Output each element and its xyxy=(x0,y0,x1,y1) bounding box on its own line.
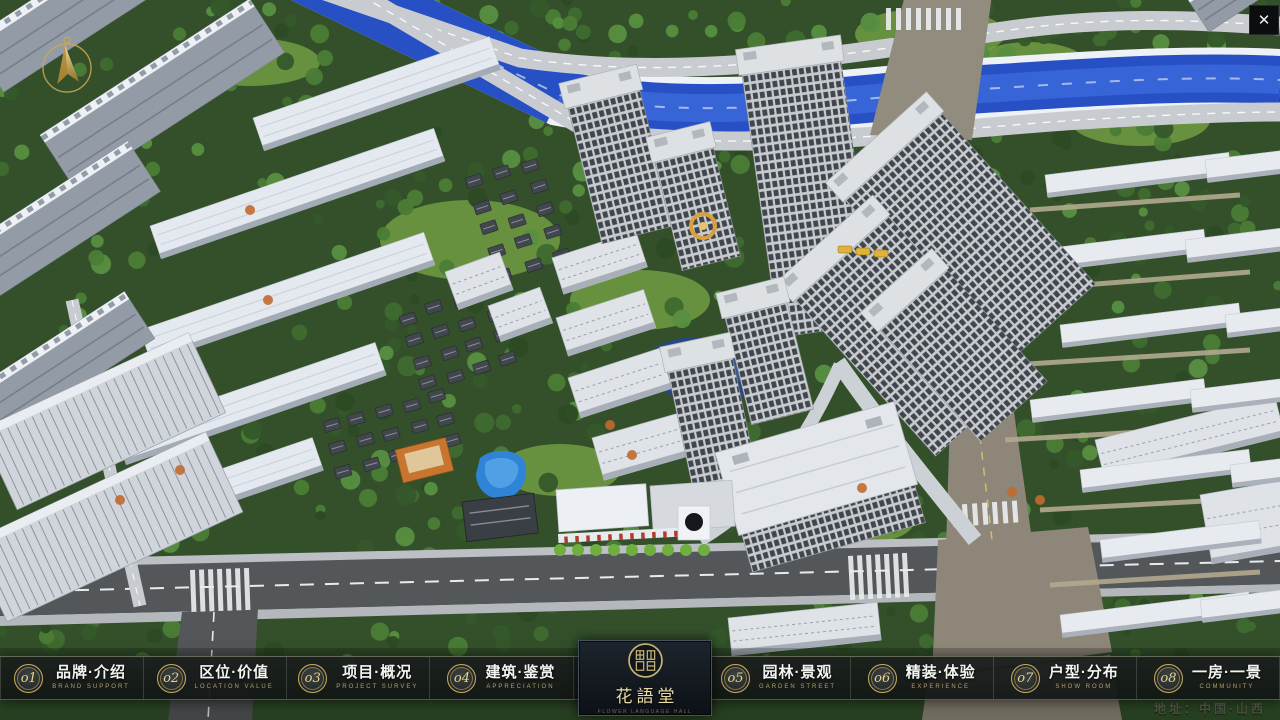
nav-badge: o5 xyxy=(721,664,750,693)
nav-label-zh: 项目·概况 xyxy=(342,665,412,682)
sales-presentation-window: ✕ o1 品牌·介绍 BRAND SUPPORT o2 区位·价值 LOCATI… xyxy=(0,0,1280,720)
close-icon: ✕ xyxy=(1258,13,1271,28)
nav-item-brand[interactable]: o1 品牌·介绍 BRAND SUPPORT xyxy=(0,657,144,699)
nav-badge: o1 xyxy=(14,664,43,693)
compass-icon xyxy=(34,26,100,100)
nav-label-en: BRAND SUPPORT xyxy=(52,684,130,691)
nav-label-en: COMMUNITY xyxy=(1199,684,1254,691)
nav-item-garden[interactable]: o5 园林·景观 GARDEN STREET xyxy=(708,657,851,699)
nav-badge: o3 xyxy=(298,664,327,693)
nav-label-zh: 一房·一景 xyxy=(1192,665,1262,682)
nav-item-views[interactable]: o8 一房·一景 COMMUNITY xyxy=(1137,657,1280,699)
nav-item-floorplan[interactable]: o7 户型·分布 SHOW ROOM xyxy=(994,657,1137,699)
nav-badge: o4 xyxy=(447,664,476,693)
nav-label-zh: 建筑·鉴赏 xyxy=(485,665,555,682)
aerial-site-map[interactable] xyxy=(0,0,1280,720)
nav-label-en: EXPERIENCE xyxy=(911,684,970,691)
close-button[interactable]: ✕ xyxy=(1249,5,1279,35)
logo-tagline: FLOWER LANGUAGE HALL xyxy=(598,709,692,715)
logo-title: 花語堂 xyxy=(616,682,679,707)
nav-label-zh: 园林·景观 xyxy=(763,665,833,682)
nav-label-en: LOCATION VALUE xyxy=(195,684,274,691)
nav-badge: o6 xyxy=(868,664,897,693)
nav-badge: o2 xyxy=(157,664,186,693)
logo-panel[interactable]: 花語堂 FLOWER LANGUAGE HALL xyxy=(578,640,712,716)
nav-label-zh: 精装·体验 xyxy=(906,665,976,682)
nav-label-zh: 户型·分布 xyxy=(1049,665,1119,682)
nav-item-architecture[interactable]: o4 建筑·鉴赏 APPRECIATION xyxy=(430,657,573,699)
nav-item-project[interactable]: o3 项目·概况 PROJECT SURVEY xyxy=(287,657,430,699)
nav-label-en: PROJECT SURVEY xyxy=(336,684,418,691)
nav-label-en: SHOW ROOM xyxy=(1055,684,1112,691)
nav-badge: o7 xyxy=(1011,664,1040,693)
nav-label-en: APPRECIATION xyxy=(486,684,554,691)
seal-icon xyxy=(626,641,665,680)
nav-label-en: GARDEN STREET xyxy=(759,684,836,691)
nav-badge: o8 xyxy=(1154,664,1183,693)
nav-item-experience[interactable]: o6 精装·体验 EXPERIENCE xyxy=(851,657,994,699)
address-text: 地址：中国·山西 xyxy=(1154,700,1266,717)
nav-label-zh: 品牌·介绍 xyxy=(56,665,126,682)
nav-label-zh: 区位·价值 xyxy=(199,665,269,682)
nav-item-location[interactable]: o2 区位·价值 LOCATION VALUE xyxy=(144,657,287,699)
